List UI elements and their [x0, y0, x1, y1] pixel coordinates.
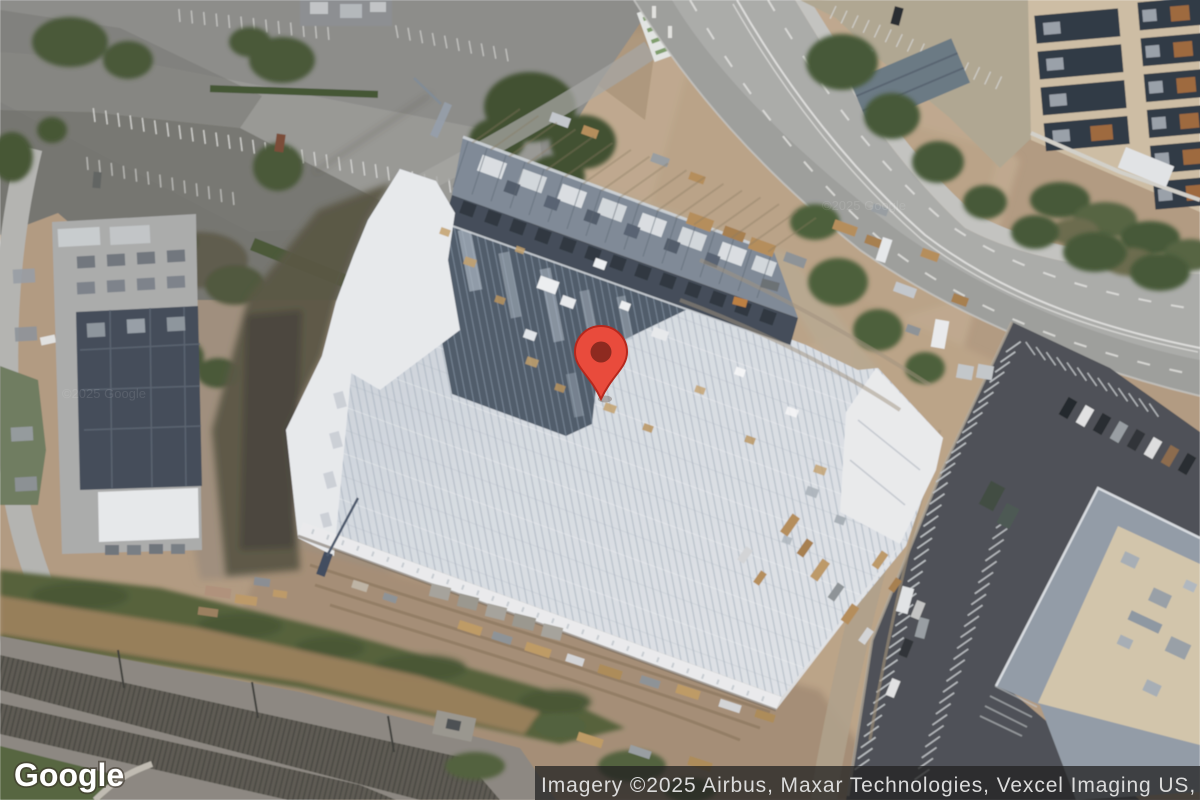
svg-text:©2025 Google: ©2025 Google [822, 198, 906, 213]
svg-text:©2025 Google: ©2025 Google [62, 386, 146, 401]
svg-text:Google: Google [14, 757, 124, 793]
svg-text:Imagery ©2025 Airbus, Maxar Te: Imagery ©2025 Airbus, Maxar Technologies… [541, 774, 1200, 797]
